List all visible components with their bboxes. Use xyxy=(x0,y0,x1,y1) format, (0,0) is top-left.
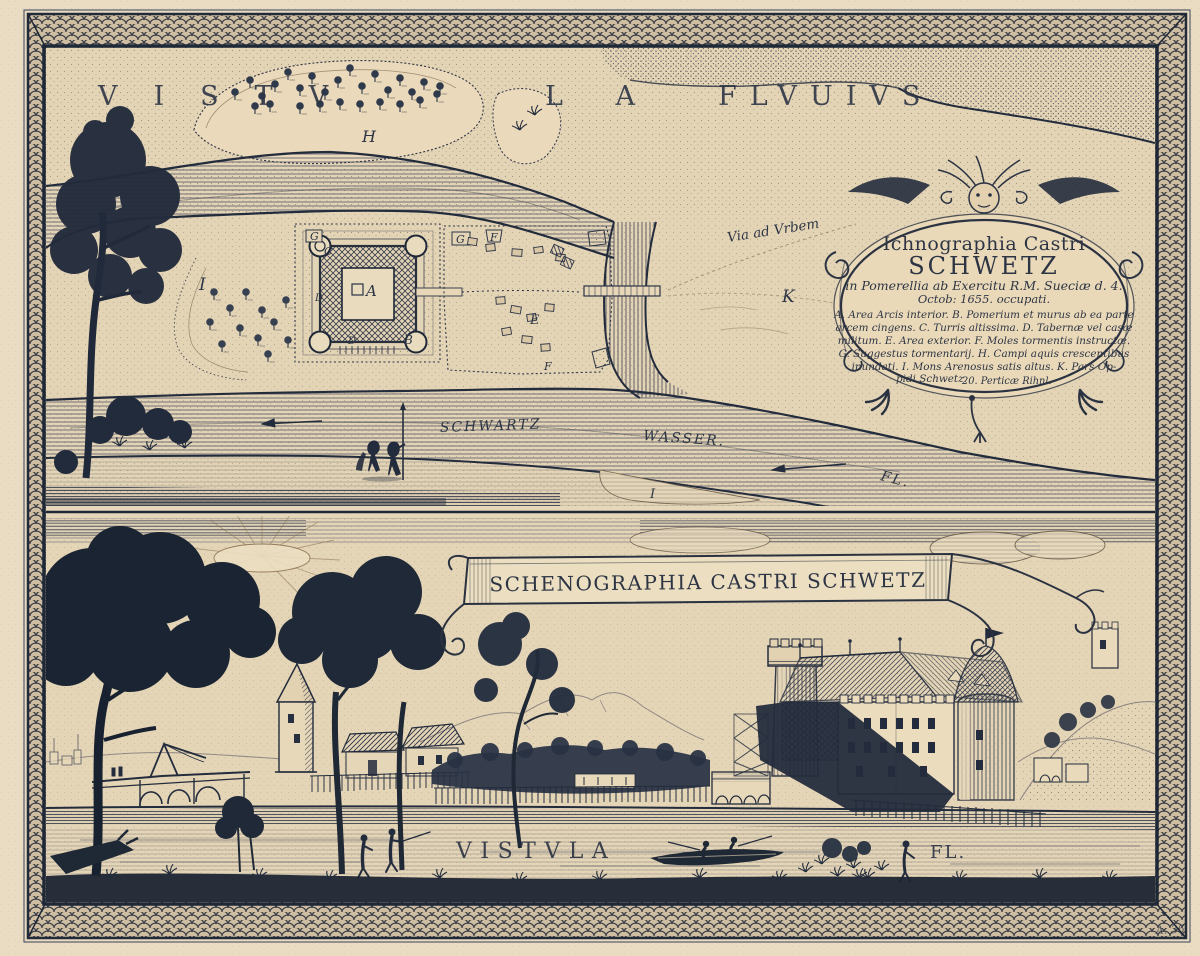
plan-letter-g2: G xyxy=(456,233,465,246)
plan-letter-c: C xyxy=(324,245,333,258)
map-panel: Ichnographia Castri SCHWETZ in Pomerelli… xyxy=(46,48,1155,508)
label-mons-arenosus: I xyxy=(198,275,206,295)
plan-letter-f2: F xyxy=(543,360,552,373)
plan-letter-f1: F xyxy=(489,231,498,244)
map-bridge xyxy=(584,286,660,296)
engraved-map-sheet: Ichnographia Castri SCHWETZ in Pomerelli… xyxy=(0,0,1200,956)
label-town-k: K xyxy=(781,287,796,307)
cartouche-legend-4: G. Suggestus tormentarij. H. Campi aquis… xyxy=(839,348,1130,360)
cartouche-legend-2: arcem cingens. C. Turris altissima. D. T… xyxy=(835,322,1132,334)
cartouche-title-schwetz: SCHWETZ xyxy=(908,252,1060,280)
view-river-label: VISTVLA xyxy=(455,839,616,864)
view-panel: SCHENOGRAPHIA CASTRI SCHWETZ VISTVLA FL. xyxy=(32,508,1155,902)
rear-bastion xyxy=(1092,622,1118,668)
cartouche-legend-1: A. Area Arcis interior. B. Pomerium et m… xyxy=(833,309,1133,321)
arched-wall xyxy=(712,772,770,804)
label-island-h: H xyxy=(361,127,377,146)
plate-mark: A. 36. xyxy=(1154,922,1188,937)
cartouche-legend-6: pidi Schwetz. xyxy=(896,373,967,385)
cartouche-scale-note: 20. Perticæ Rihnl. xyxy=(961,376,1052,387)
plan-letter-a: A xyxy=(364,282,377,300)
label-shore-i: I xyxy=(649,487,656,502)
river-title-part3: FLVUIVS xyxy=(718,81,933,112)
plan-letter-e: E xyxy=(529,313,540,328)
plan-letter-d2: D xyxy=(347,336,356,347)
cartouche-subtitle-1: in Pomerellia ab Exercitu R.M. Sueciæ d.… xyxy=(845,278,1122,293)
panel-divider xyxy=(46,506,1155,517)
river-title-part1: VISTV xyxy=(97,81,364,112)
banner-title: SCHENOGRAPHIA CASTRI SCHWETZ xyxy=(489,568,926,597)
cartouche-subtitle-2: Octob: 1655. occupati. xyxy=(918,292,1050,306)
view-river-label-abbrev: FL. xyxy=(930,842,966,863)
plan-letter-d1: D xyxy=(314,293,323,304)
river-title-part2: L A xyxy=(545,81,657,112)
cartouche-legend-5: inundati. I. Mons Arenosus satis altus. … xyxy=(852,361,1117,373)
clouds-center xyxy=(630,527,770,553)
plan-letter-b: B xyxy=(403,333,413,347)
cartouche-legend-3: militum. E. Area exterior. F. Moles torm… xyxy=(838,335,1130,347)
plan-letter-g1: G xyxy=(310,230,319,243)
